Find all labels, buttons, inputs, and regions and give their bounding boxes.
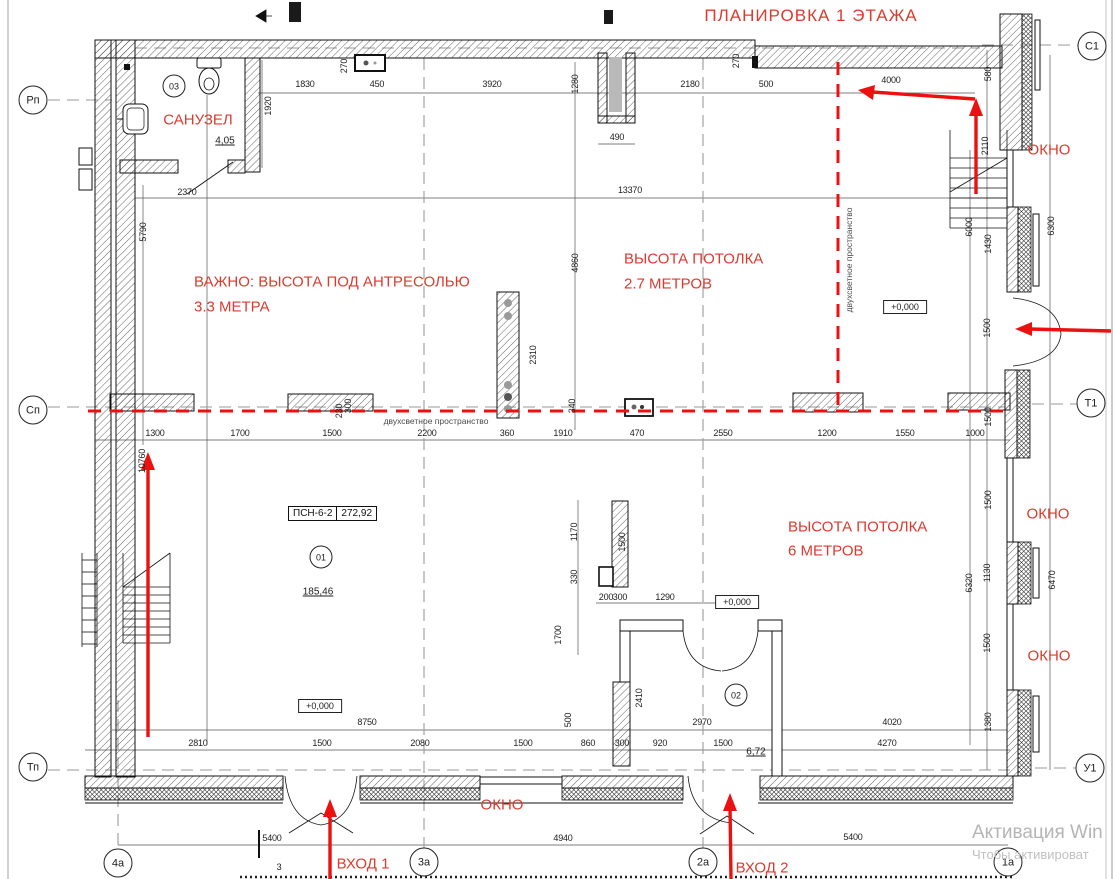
entrance-2-door bbox=[688, 776, 754, 834]
axis-grid-layer bbox=[48, 45, 1078, 852]
watermark-line-2: Чтобы активироват bbox=[972, 847, 1103, 862]
entrance-1-door bbox=[285, 776, 357, 833]
unit-stamp-name: ПСН-6-2 bbox=[289, 507, 336, 520]
red-arrow-stairs-left bbox=[141, 452, 155, 737]
red-arrow-top bbox=[858, 85, 975, 100]
section-mark bbox=[289, 2, 301, 22]
center-column bbox=[497, 292, 519, 418]
plan-title: ПЛАНИРОВКА 1 ЭТАЖА bbox=[704, 6, 917, 26]
window-right-1 bbox=[1007, 150, 1013, 207]
bottom-wall bbox=[85, 776, 1013, 803]
red-markup-layer bbox=[88, 62, 1111, 879]
unit-stamp-area: 272,92 bbox=[336, 507, 376, 520]
window-right-2 bbox=[1007, 458, 1013, 542]
toilet-icon bbox=[197, 58, 221, 94]
window-right-3 bbox=[1007, 604, 1013, 690]
windows-activation-watermark: Активация Win Чтобы активироват bbox=[972, 822, 1103, 862]
top-niche bbox=[355, 55, 385, 71]
bathroom-door-leaf bbox=[187, 162, 233, 194]
shaft bbox=[598, 53, 635, 123]
walls-layer bbox=[85, 2, 1061, 834]
floor-plan-canvas: .w{fill:url(#ph);stroke:#111;stroke-widt… bbox=[0, 0, 1113, 879]
unit-stamp: ПСН-6-2 272,92 bbox=[288, 506, 377, 521]
floor-plan-drawing: .w{fill:url(#ph);stroke:#111;stroke-widt… bbox=[0, 0, 1113, 879]
entrance-arrow-1 bbox=[323, 799, 337, 879]
right-staircase bbox=[950, 130, 1007, 228]
red-arrow-side-entry bbox=[1015, 322, 1111, 336]
north-arrow-icon bbox=[256, 10, 272, 22]
vestibule-walls bbox=[613, 620, 782, 776]
entrance-arrow-2 bbox=[723, 793, 737, 879]
watermark-line-1: Активация Win bbox=[972, 822, 1103, 844]
sheet-frame bbox=[8, 0, 1112, 879]
mid-box bbox=[625, 399, 653, 416]
right-door-leaf-2 bbox=[1013, 334, 1061, 366]
window-bottom bbox=[480, 777, 562, 784]
